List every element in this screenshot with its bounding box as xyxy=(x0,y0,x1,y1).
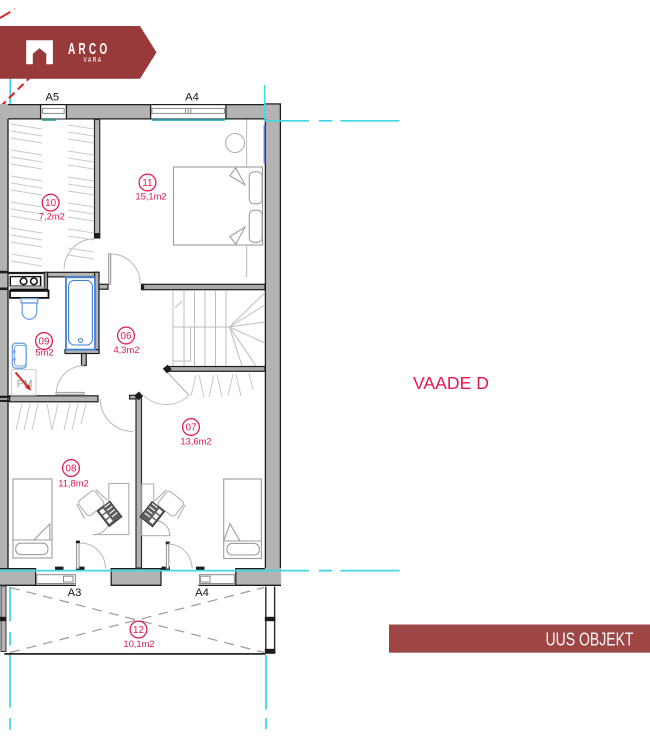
svg-text:VAADE D: VAADE D xyxy=(413,373,489,393)
svg-text:13,6m2: 13,6m2 xyxy=(180,435,211,446)
svg-text:11: 11 xyxy=(142,178,152,189)
svg-text:A4: A4 xyxy=(185,92,199,104)
svg-text:10,1m2: 10,1m2 xyxy=(123,638,154,649)
svg-text:15,1m2: 15,1m2 xyxy=(135,191,166,202)
svg-text:07: 07 xyxy=(186,423,197,434)
svg-text:ARCO: ARCO xyxy=(68,40,110,58)
svg-text:A3: A3 xyxy=(68,587,82,599)
svg-text:06: 06 xyxy=(121,331,132,342)
svg-text:7,2m2: 7,2m2 xyxy=(39,211,65,222)
svg-text:A4: A4 xyxy=(195,587,209,599)
svg-text:A5: A5 xyxy=(45,92,59,104)
svg-text:4,3m2: 4,3m2 xyxy=(113,344,139,355)
svg-text:12: 12 xyxy=(133,625,144,636)
svg-text:11,8m2: 11,8m2 xyxy=(58,477,89,488)
svg-text:UUS OBJEKT: UUS OBJEKT xyxy=(546,629,634,650)
svg-text:VARA: VARA xyxy=(83,56,102,64)
svg-text:10: 10 xyxy=(45,198,56,209)
svg-text:08: 08 xyxy=(66,464,77,475)
svg-text:5m2: 5m2 xyxy=(35,347,53,358)
